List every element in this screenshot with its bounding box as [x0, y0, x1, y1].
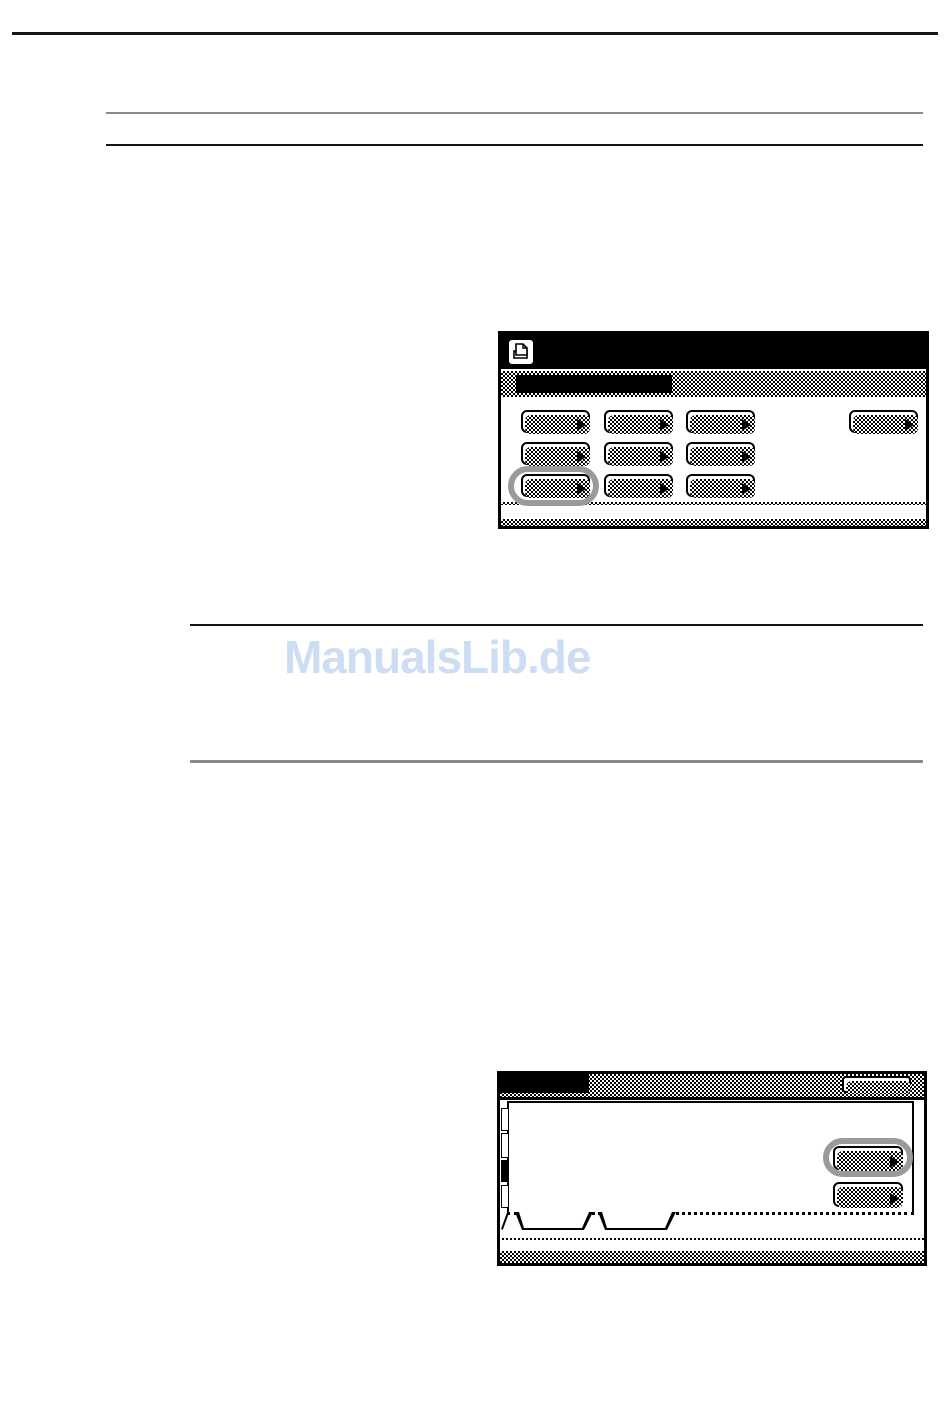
- screen1-printer-menu: [498, 331, 929, 529]
- side-button[interactable]: [849, 410, 918, 433]
- screen1-bottom-strip: [501, 519, 926, 526]
- arrow-icon: [742, 483, 751, 495]
- menu-button-5[interactable]: [604, 442, 673, 465]
- watermark: ManualsLib.de: [284, 630, 590, 684]
- arrow-icon: [577, 419, 586, 431]
- screen2-separator: [500, 1238, 924, 1240]
- menu-button-1[interactable]: [521, 410, 590, 433]
- arrow-icon: [742, 419, 751, 431]
- arrow-icon: [905, 419, 914, 431]
- top-rule: [12, 32, 938, 35]
- arrow-icon: [660, 451, 669, 463]
- arrow-icon: [660, 419, 669, 431]
- mid-rule-gray: [190, 760, 923, 763]
- screen2-bottom-strip: [500, 1251, 924, 1263]
- bottom-tab-1[interactable]: [515, 1212, 593, 1230]
- menu-button-3[interactable]: [686, 410, 755, 433]
- arrow-icon: [660, 483, 669, 495]
- arrow-icon: [742, 451, 751, 463]
- menu-button-6[interactable]: [686, 442, 755, 465]
- highlight-ring-screen1: [508, 466, 599, 506]
- menu-button-9[interactable]: [686, 474, 755, 497]
- screen2-settings: [497, 1071, 927, 1266]
- menu-button-8[interactable]: [604, 474, 673, 497]
- highlight-ring-screen2: [823, 1138, 913, 1177]
- mid-rule-black: [190, 624, 923, 626]
- bottom-tab-2[interactable]: [598, 1212, 676, 1230]
- manual-page: ManualsLib.de: [0, 0, 950, 1409]
- menu-button-2[interactable]: [604, 410, 673, 433]
- section-rule-black: [106, 144, 923, 146]
- section-rule-gray: [106, 112, 923, 114]
- menu-button-4[interactable]: [521, 442, 590, 465]
- arrow-icon: [577, 451, 586, 463]
